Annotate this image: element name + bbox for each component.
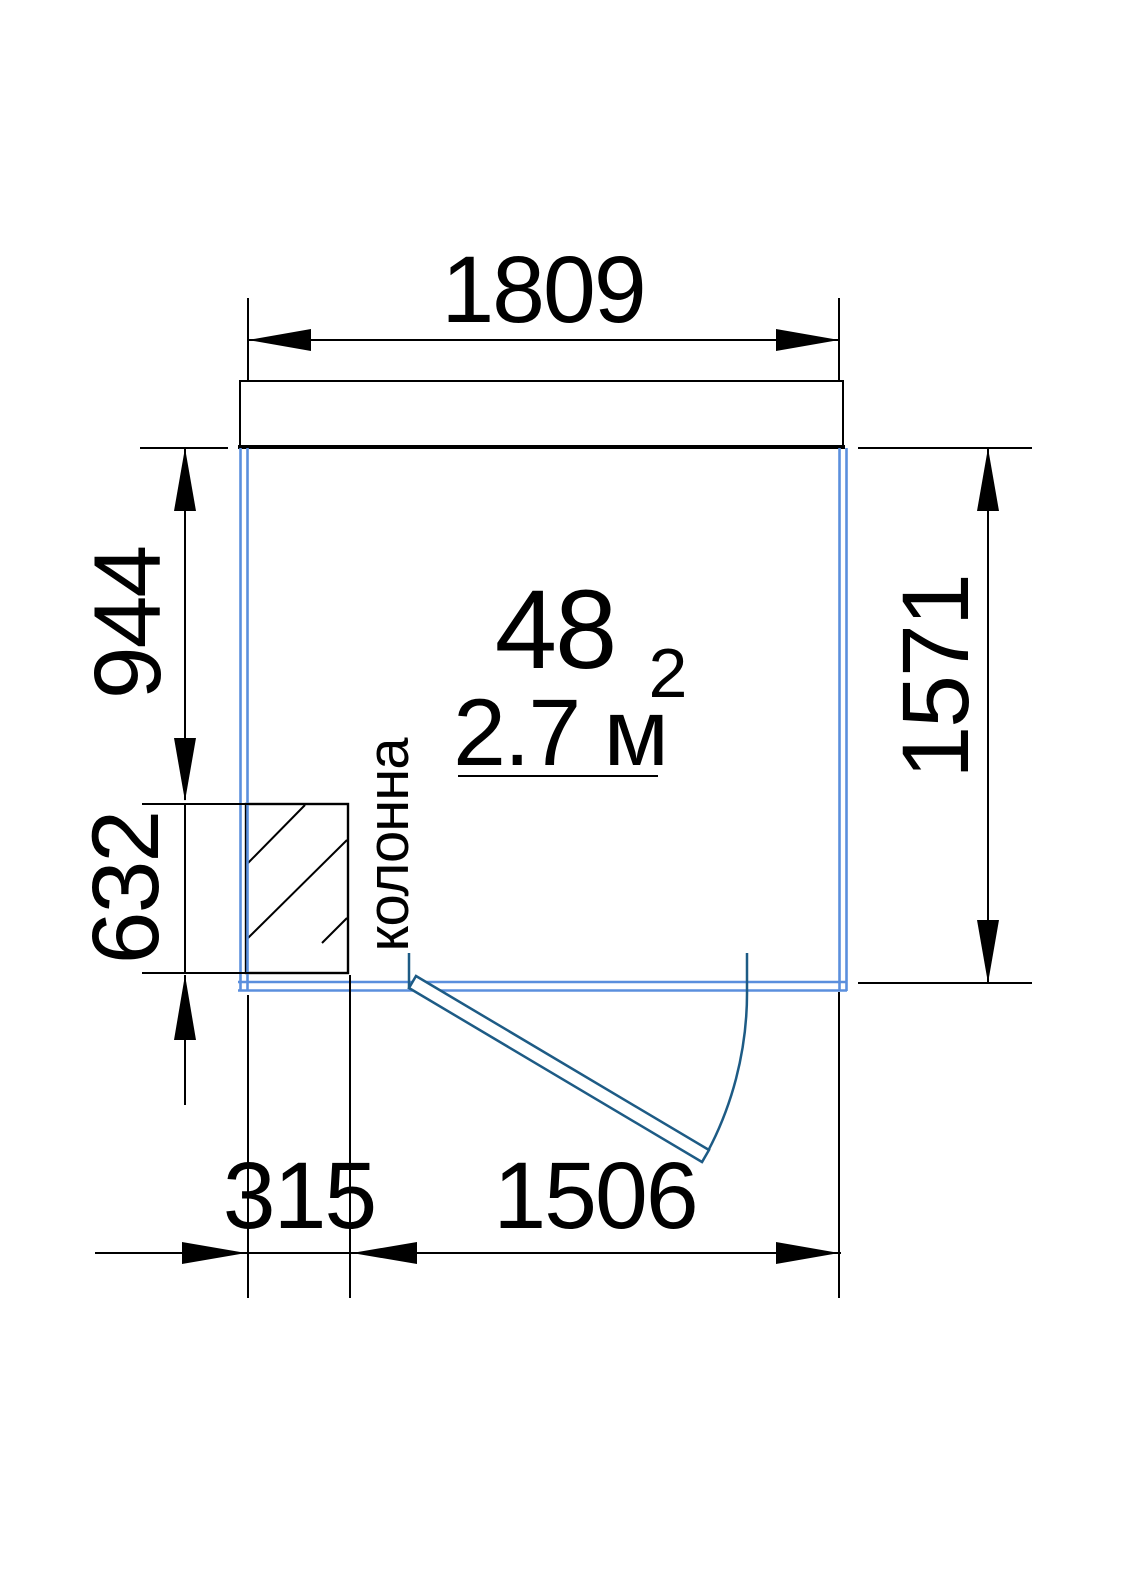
left-lower-arrow-bottom <box>174 975 196 1040</box>
top-dim-arrow-left <box>248 329 311 351</box>
room-number: 48 <box>495 567 616 692</box>
right-dim-arrow-top <box>977 448 999 511</box>
right-dimension-1571: 1571 <box>858 448 1032 983</box>
floor-plan-svg: 1809 колонна 944 <box>0 0 1123 1588</box>
bottom-arrow-right <box>776 1242 839 1264</box>
room-area-value: 2.7 м <box>453 680 667 786</box>
top-wall-band <box>238 381 845 447</box>
door-leaf <box>409 976 709 1162</box>
door-swing-arc <box>702 989 747 1162</box>
left-upper-dim-value: 944 <box>75 547 181 700</box>
bottom-dim-value-left: 315 <box>223 1143 376 1249</box>
left-upper-arrow-top <box>174 448 196 511</box>
right-dim-arrow-bottom <box>977 920 999 983</box>
left-upper-dimension-944: 944 <box>75 448 228 801</box>
top-dim-arrow-right <box>776 329 839 351</box>
door <box>409 953 747 1162</box>
room-label: 48 2 2.7 м <box>453 567 687 786</box>
column-label: колонна <box>356 737 421 952</box>
right-dim-value: 1571 <box>883 575 989 778</box>
column: колонна <box>246 737 421 973</box>
top-band-rect <box>240 381 843 447</box>
bottom-dim-value-right: 1506 <box>493 1143 696 1249</box>
left-upper-arrow-bottom <box>174 738 196 801</box>
top-dim-value: 1809 <box>441 237 644 343</box>
left-lower-dim-value: 632 <box>73 812 179 965</box>
floor-plan-page: 1809 колонна 944 <box>0 0 1123 1588</box>
